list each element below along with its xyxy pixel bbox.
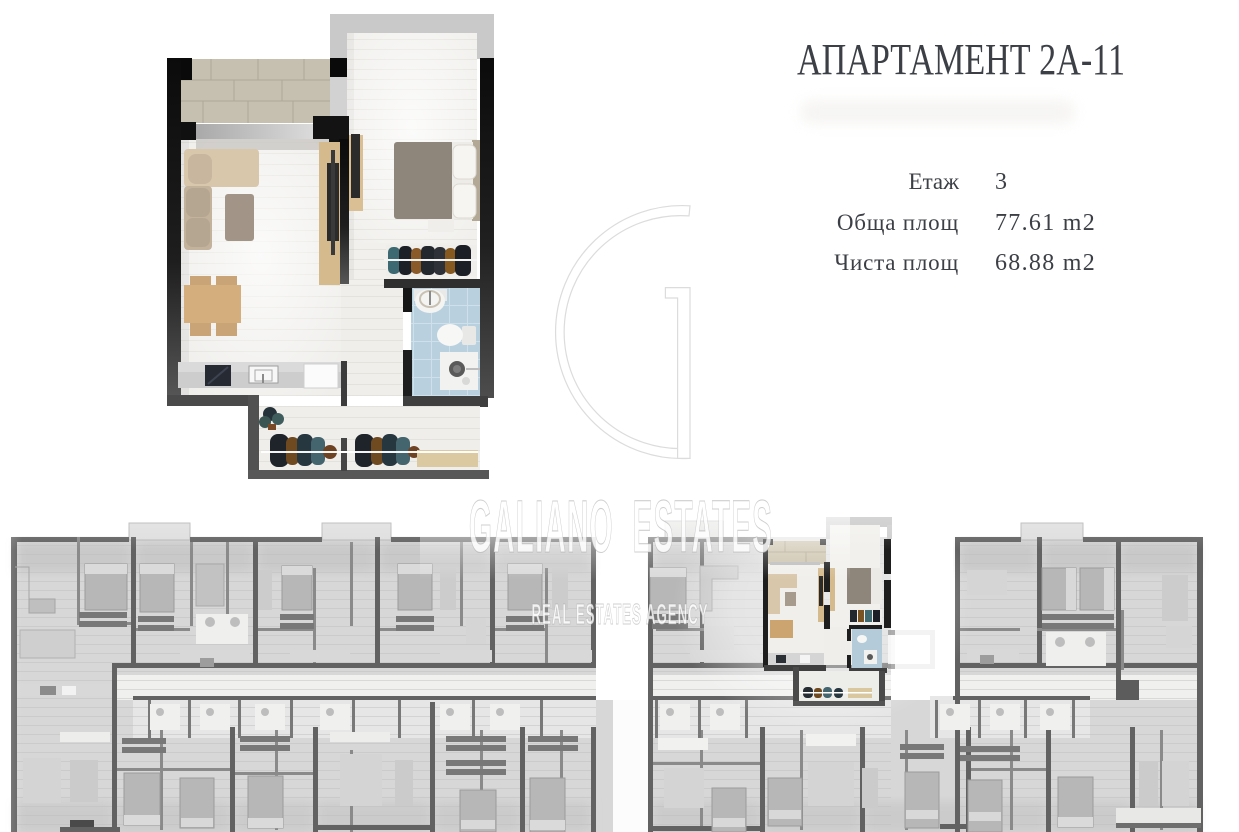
svg-text:GALIANO ESTATES: GALIANO ESTATES — [469, 485, 773, 568]
svg-text:REAL ESTATES AGENCY: REAL ESTATES AGENCY — [531, 598, 708, 630]
